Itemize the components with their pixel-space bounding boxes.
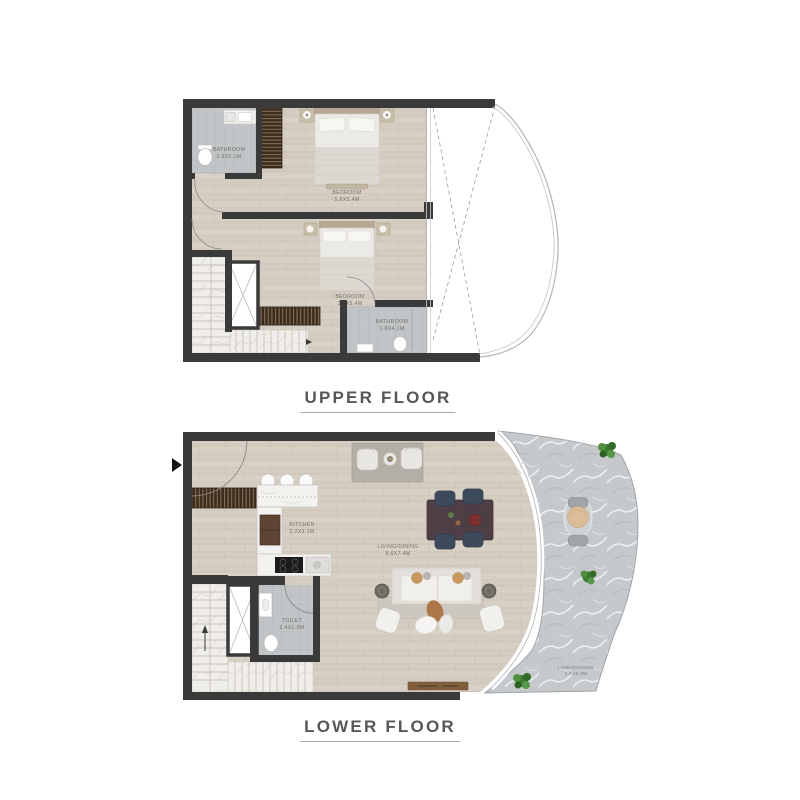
svg-text:BATHROOM: BATHROOM <box>376 319 408 325</box>
side-table-dot <box>389 458 391 460</box>
dining-chair-icon <box>463 489 483 504</box>
svg-text:BEDROOM: BEDROOM <box>335 294 364 300</box>
pillow <box>319 117 346 132</box>
bed-bench <box>326 184 368 189</box>
sink-basin <box>262 599 269 611</box>
table-decor <box>456 521 461 526</box>
wardrobe-icon <box>192 488 258 508</box>
svg-text:2.3X2.1M: 2.3X2.1M <box>216 154 241 160</box>
toilet-icon <box>198 149 212 166</box>
terrace-table-set <box>564 496 592 546</box>
elevator-shaft <box>228 262 258 328</box>
lamp-icon <box>379 225 387 233</box>
void-area <box>433 104 558 357</box>
sink-icon <box>238 113 252 122</box>
svg-text:5.8X3.4M: 5.8X3.4M <box>334 197 359 203</box>
pillow-round <box>423 572 431 580</box>
svg-text:TOILET: TOILET <box>282 618 303 624</box>
lower-floor-title: LOWER FLOOR <box>300 717 460 742</box>
upper-floor-title: UPPER FLOOR <box>301 388 456 413</box>
terrace-chair-icon <box>568 535 588 546</box>
terrace-table-icon <box>568 507 589 528</box>
svg-text:BEDROOM: BEDROOM <box>332 190 361 196</box>
dining-chair-icon <box>463 532 483 547</box>
svg-text:2.0X8.8M: 2.0X8.8M <box>565 671 587 676</box>
side-table-icon <box>482 584 496 598</box>
dining-table-icon <box>427 500 493 540</box>
plate <box>469 514 481 526</box>
headboard <box>314 107 380 114</box>
reading-nook <box>352 443 423 482</box>
room-label-kitchen: KITCHEN 2.2X3.1M <box>289 522 314 535</box>
room-label-bedroom-2: BEDROOM 3.2X5.4M <box>335 294 364 307</box>
upper-floor-title-text: UPPER FLOOR <box>301 388 456 413</box>
lamp-dot <box>306 114 308 116</box>
plant-icon <box>598 442 616 458</box>
pillow <box>323 231 346 242</box>
upper-floor-plan: BEDROOM 5.8X3.4M BATHROOM 2.3X2.1M BEDRO… <box>180 95 560 367</box>
toilet-icon <box>394 337 407 352</box>
wardrobe-icon <box>258 307 320 325</box>
armchair-icon <box>357 449 378 470</box>
sink-basin <box>314 562 321 569</box>
pillow-round <box>412 573 423 584</box>
blanket <box>320 257 374 290</box>
svg-text:LIVING/DINING: LIVING/DINING <box>377 544 418 550</box>
armchair-icon <box>401 448 422 469</box>
cooktop-icon <box>275 557 303 573</box>
void-cross-lines <box>433 106 495 355</box>
svg-text:BATHROOM: BATHROOM <box>213 147 245 153</box>
room-label-toilet: TOILET 2.4X1.8M <box>279 618 304 631</box>
dining-chair-icon <box>435 491 455 506</box>
room-label-bathroom-1: BATHROOM 2.3X2.1M <box>213 147 245 160</box>
headboard <box>319 221 375 228</box>
curved-facade-outer <box>480 104 558 357</box>
upper-bathroom-1 <box>192 107 256 173</box>
pillow <box>349 117 376 131</box>
dining-chair-icon <box>435 534 455 549</box>
svg-text:1.8X4.1M: 1.8X4.1M <box>379 326 404 332</box>
pillow-round <box>453 573 464 584</box>
floorplan-page: BEDROOM 5.8X3.4M BATHROOM 2.3X2.1M BEDRO… <box>0 0 800 800</box>
svg-text:2.4X1.8M: 2.4X1.8M <box>279 625 304 631</box>
blanket <box>315 147 379 184</box>
table-decor <box>448 512 454 518</box>
side-table-icon <box>375 584 389 598</box>
svg-text:8.6X7.4M: 8.6X7.4M <box>385 551 410 557</box>
sink-icon <box>357 344 373 352</box>
pillow <box>348 231 371 242</box>
room-label-bathroom-2: BATHROOM 1.8X4.1M <box>376 319 408 332</box>
toilet-icon <box>264 635 278 652</box>
svg-text:LIVING/DINING: LIVING/DINING <box>558 665 595 670</box>
entry-arrow-icon <box>172 458 182 472</box>
lower-floor-title-text: LOWER FLOOR <box>300 717 460 742</box>
lower-floor-plan: TOILET 2.4X1.8M KITCHEN <box>165 425 645 710</box>
lamp-icon <box>306 225 314 233</box>
svg-text:2.2X3.1M: 2.2X3.1M <box>289 529 314 535</box>
pillow-round <box>463 572 471 580</box>
room-label-bedroom-1: BEDROOM 5.8X3.4M <box>332 190 361 203</box>
washer-icon <box>226 113 235 122</box>
kitchen-counter-top <box>257 485 318 507</box>
lamp-dot <box>386 114 388 116</box>
svg-text:KITCHEN: KITCHEN <box>289 522 314 528</box>
